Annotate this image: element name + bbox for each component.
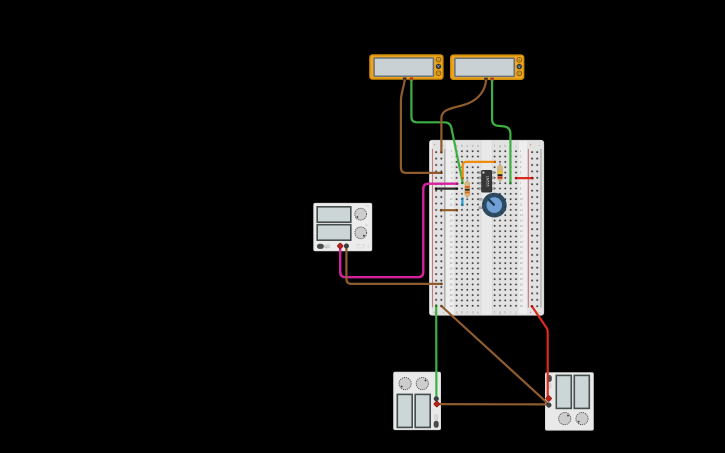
svg-text:30V: 30V <box>365 206 369 208</box>
svg-text:b: b <box>461 310 463 314</box>
svg-text:j: j <box>515 310 517 314</box>
svg-text:LM555: LM555 <box>485 176 489 187</box>
svg-text:a: a <box>456 310 458 314</box>
svg-text:h: h <box>504 144 506 148</box>
svg-text:c: c <box>466 310 468 314</box>
svg-text:f: f <box>494 144 495 148</box>
svg-text:f: f <box>494 310 495 314</box>
svg-text:⏚: ⏚ <box>367 243 370 248</box>
svg-text:c: c <box>466 144 468 148</box>
svg-text:d: d <box>472 310 474 314</box>
svg-text:g: g <box>499 144 501 148</box>
svg-text:d: d <box>472 144 474 148</box>
svg-text:e: e <box>477 310 479 314</box>
svg-text:g: g <box>499 310 501 314</box>
svg-text:30V / 5A: 30V / 5A <box>357 244 366 247</box>
svg-text:b: b <box>461 144 463 148</box>
svg-text:e: e <box>477 144 479 148</box>
svg-text:h: h <box>504 310 506 314</box>
svg-text:j: j <box>515 144 517 148</box>
svg-text:DC OUT: DC OUT <box>357 248 366 250</box>
